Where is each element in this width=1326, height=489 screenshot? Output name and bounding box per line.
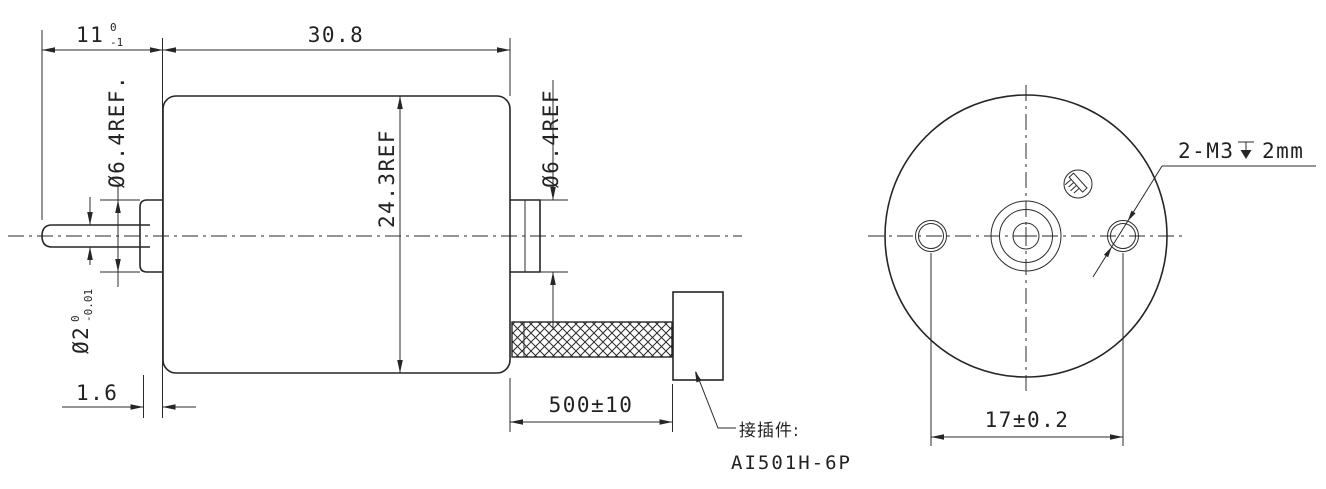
connector-label: 接插件: — [739, 421, 800, 441]
dim-lead-length-text: 500±10 — [549, 393, 634, 417]
dim-rear-hub-dia-text: Ø6.4REF — [539, 89, 563, 188]
dim-shaft-length-text: 11 — [76, 23, 104, 47]
dim-shaft-length-tol-upper: 0 — [110, 21, 117, 34]
dim-body-length: 30.8 — [163, 23, 510, 96]
connector-outline — [673, 292, 723, 380]
technical-drawing-canvas: 11 0 -1 30.8 Ø6.4REF. 24.3REF — [0, 0, 1326, 489]
thread-note: 2-M3 2mm — [1093, 139, 1316, 277]
dim-shaft-dia-tol-upper: 0 — [69, 315, 82, 322]
motor-body-outline — [163, 96, 510, 373]
end-view: 2-M3 2mm 17±0.2 — [868, 85, 1316, 446]
dim-front-hub-dia-text: Ø6.4REF. — [105, 75, 129, 188]
connector-callout: 接插件: AI501H-6P — [695, 371, 852, 474]
dim-mount-hole-spacing-text: 17±0.2 — [985, 408, 1070, 432]
dim-body-dia-text: 24.3REF — [375, 129, 399, 228]
dim-body-dia: 24.3REF — [375, 96, 400, 373]
depth-symbol-icon — [1238, 142, 1254, 159]
dim-body-length-text: 30.8 — [308, 23, 365, 47]
dim-shaft-length-tol-lower: -1 — [110, 36, 123, 49]
dim-shaft-length: 11 0 -1 — [42, 21, 163, 418]
vent-hole — [1063, 170, 1092, 198]
lead-wire — [512, 322, 672, 357]
dim-flange-thickness: 1.6 — [62, 375, 196, 418]
dim-rear-hub-dia: Ø6.4REF — [539, 80, 568, 330]
dim-front-hub-dia: Ø6.4REF. — [100, 75, 140, 287]
dim-shaft-dia-tol-lower: -0.01 — [82, 289, 95, 322]
motor-outline-drawing: 11 0 -1 30.8 Ø6.4REF. 24.3REF — [0, 0, 1326, 489]
side-view: 11 0 -1 30.8 Ø6.4REF. 24.3REF — [8, 21, 852, 474]
dim-mount-hole-spacing: 17±0.2 — [931, 253, 1123, 446]
thread-note-prefix: 2-M3 — [1178, 139, 1235, 163]
thread-note-suffix: 2mm — [1262, 139, 1304, 163]
connector-model: AI501H-6P — [731, 452, 852, 474]
dim-lead-length: 500±10 — [510, 378, 673, 432]
dim-flange-thickness-text: 1.6 — [76, 381, 118, 405]
dim-shaft-dia: Ø2 0 -0.01 — [69, 197, 95, 354]
dim-shaft-dia-text: Ø2 — [69, 326, 93, 354]
